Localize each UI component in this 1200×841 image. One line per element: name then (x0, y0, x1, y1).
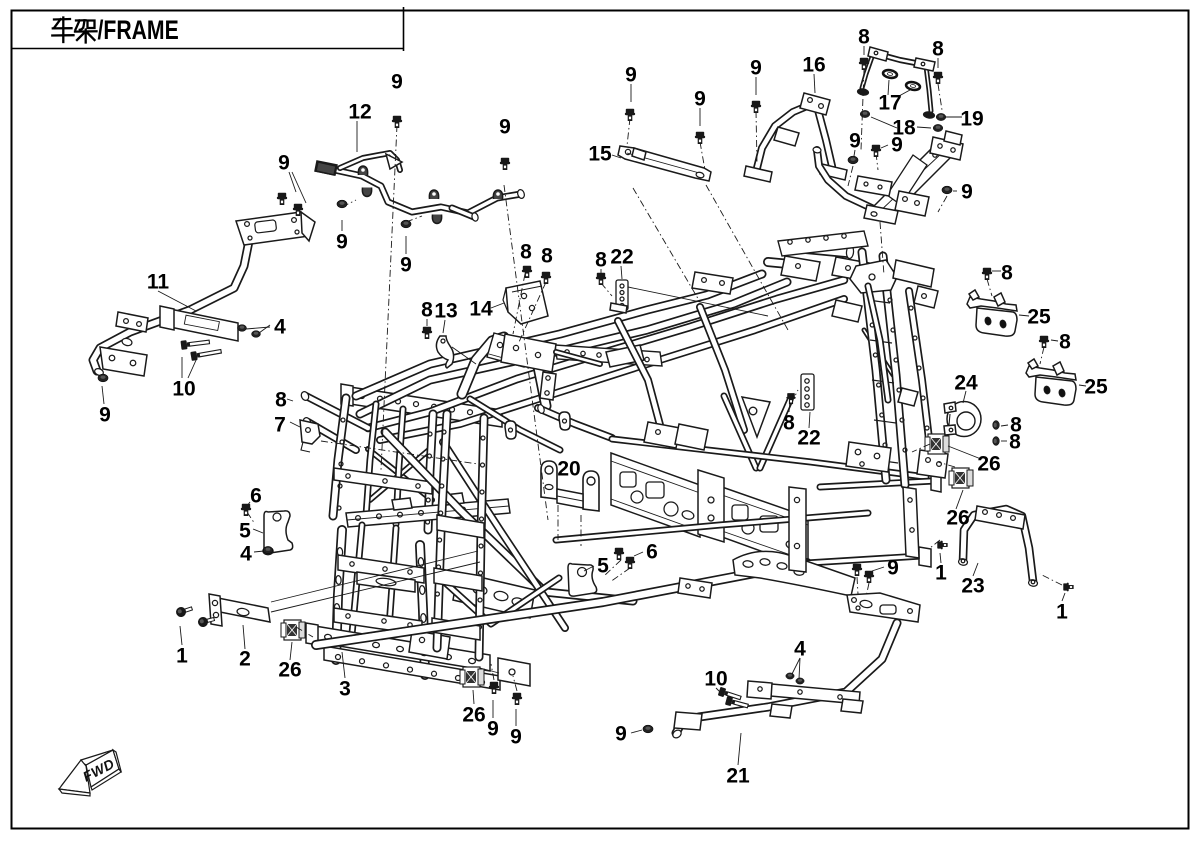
svg-text:9: 9 (615, 723, 627, 746)
svg-text:8: 8 (858, 26, 870, 49)
svg-text:14: 14 (469, 298, 493, 321)
svg-text:9: 9 (887, 557, 899, 580)
svg-text:8: 8 (520, 241, 532, 264)
svg-text:9: 9 (625, 64, 637, 87)
svg-text:8: 8 (1009, 431, 1021, 454)
svg-text:11: 11 (147, 271, 170, 294)
svg-text:5: 5 (597, 555, 609, 578)
svg-text:9: 9 (694, 88, 706, 111)
svg-text:4: 4 (794, 638, 806, 661)
svg-text:25: 25 (1027, 306, 1051, 329)
svg-text:22: 22 (610, 246, 633, 269)
svg-text:8: 8 (275, 389, 287, 412)
svg-text:9: 9 (961, 181, 973, 204)
svg-text:26: 26 (946, 507, 969, 530)
svg-text:17: 17 (878, 92, 901, 115)
svg-text:1: 1 (935, 562, 947, 585)
svg-text:8: 8 (1059, 331, 1071, 354)
svg-text:9: 9 (510, 726, 522, 749)
svg-text:9: 9 (336, 231, 348, 254)
svg-text:9: 9 (391, 71, 403, 94)
svg-text:4: 4 (274, 316, 286, 339)
svg-text:9: 9 (750, 57, 762, 80)
svg-text:9: 9 (99, 404, 111, 427)
svg-text:/FRAME: /FRAME (98, 16, 179, 46)
svg-text:9: 9 (278, 152, 290, 175)
svg-text:21: 21 (726, 765, 750, 788)
svg-text:8: 8 (1001, 262, 1013, 285)
svg-text:8: 8 (595, 249, 607, 272)
svg-text:22: 22 (797, 427, 820, 450)
svg-text:9: 9 (891, 134, 903, 157)
svg-text:1: 1 (1056, 601, 1068, 624)
svg-text:9: 9 (499, 116, 511, 139)
svg-text:23: 23 (961, 575, 984, 598)
svg-text:26: 26 (977, 453, 1000, 476)
svg-text:10: 10 (704, 668, 727, 691)
svg-text:26: 26 (462, 704, 485, 727)
svg-text:6: 6 (250, 485, 262, 508)
svg-text:7: 7 (274, 414, 286, 437)
svg-text:19: 19 (960, 108, 983, 131)
svg-text:16: 16 (802, 54, 825, 77)
svg-text:5: 5 (239, 520, 251, 543)
svg-text:1: 1 (176, 645, 188, 668)
svg-text:9: 9 (849, 130, 861, 153)
svg-text:6: 6 (646, 541, 658, 564)
svg-text:8: 8 (932, 38, 944, 61)
svg-text:10: 10 (172, 378, 195, 401)
svg-text:15: 15 (588, 143, 612, 166)
svg-text:3: 3 (339, 678, 351, 701)
svg-text:12: 12 (348, 101, 371, 124)
svg-text:8: 8 (541, 245, 553, 268)
svg-text:9: 9 (400, 254, 412, 277)
svg-text:20: 20 (557, 458, 580, 481)
svg-text:24: 24 (954, 372, 978, 395)
svg-text:26: 26 (278, 659, 301, 682)
svg-text:9: 9 (487, 718, 499, 741)
svg-text:8: 8 (783, 412, 795, 435)
svg-text:2: 2 (239, 648, 251, 671)
svg-text:4: 4 (240, 543, 252, 566)
svg-text:13: 13 (434, 300, 457, 323)
svg-text:25: 25 (1084, 376, 1108, 399)
svg-text:8: 8 (421, 299, 433, 322)
